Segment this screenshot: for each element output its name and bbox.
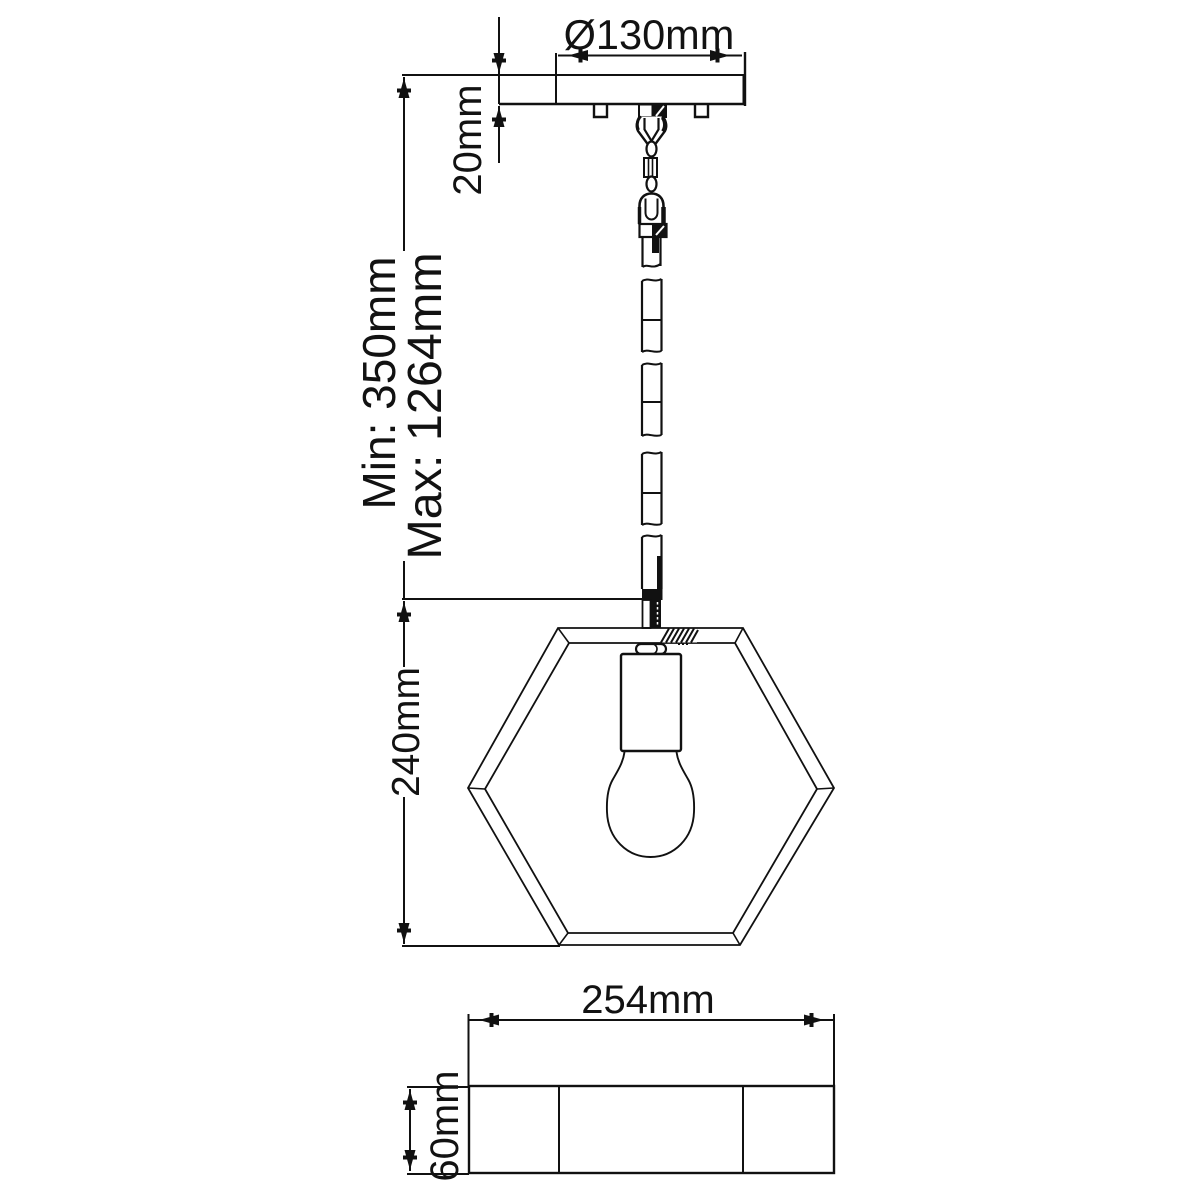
svg-text:60mm: 60mm — [423, 1070, 467, 1181]
svg-text:Min: 350mm: Min: 350mm — [353, 256, 405, 509]
svg-text:20mm: 20mm — [446, 84, 490, 195]
svg-text:254mm: 254mm — [581, 978, 714, 1022]
svg-text:240mm: 240mm — [385, 667, 428, 797]
svg-text:Max: 1264mm: Max: 1264mm — [398, 252, 452, 559]
svg-text:Ø130mm: Ø130mm — [564, 11, 735, 58]
